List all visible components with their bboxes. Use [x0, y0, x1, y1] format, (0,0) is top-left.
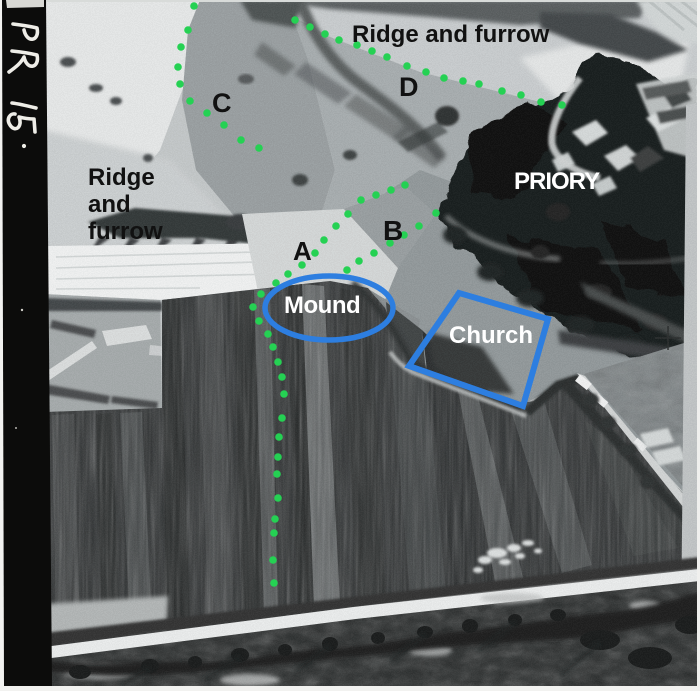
svg-text:and: and	[88, 191, 131, 218]
svg-text:Ridge: Ridge	[88, 164, 155, 191]
svg-text:Ridge and furrow: Ridge and furrow	[352, 21, 550, 48]
svg-text:Church: Church	[449, 322, 533, 349]
svg-text:furrow: furrow	[88, 218, 163, 245]
svg-text:C: C	[212, 88, 232, 118]
svg-text:D: D	[399, 72, 419, 102]
svg-text:A: A	[293, 236, 312, 266]
svg-text:PRIORY: PRIORY	[514, 168, 600, 195]
svg-text:B: B	[383, 215, 403, 246]
svg-text:Mound: Mound	[284, 292, 360, 319]
